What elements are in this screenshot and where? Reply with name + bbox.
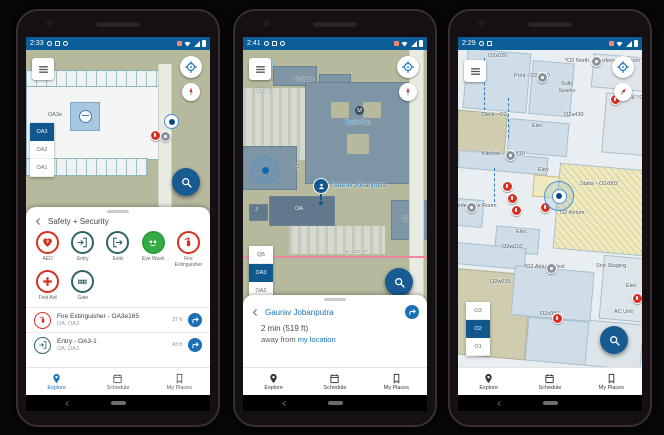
directions-button[interactable] (188, 313, 202, 327)
back-icon[interactable] (496, 400, 503, 407)
front-camera (263, 20, 270, 27)
locate-icon (616, 60, 630, 74)
floor-option-oa3[interactable]: OA3 (249, 264, 273, 282)
floor-option-o3[interactable]: O3 (466, 302, 490, 320)
map-label: Sully Sparks (554, 81, 580, 94)
tab-schedule[interactable]: Schedule (87, 368, 148, 395)
map-building (305, 82, 411, 184)
search-icon (608, 334, 621, 347)
signal-icon (194, 41, 200, 47)
signal-icon (626, 41, 632, 47)
entry-icon (34, 337, 51, 354)
battery-icon (419, 40, 423, 47)
category-fire-extinguisher[interactable]: Fire Extinguisher (171, 231, 206, 267)
notification-icon (487, 41, 492, 46)
bookmark-icon (606, 373, 617, 384)
exits-icon (106, 231, 129, 254)
status-right-icons (394, 40, 424, 47)
result-distance: 37 ft (172, 317, 182, 323)
directions-button[interactable] (405, 305, 419, 319)
no-entry-icon (79, 110, 92, 123)
compass-button[interactable] (399, 83, 417, 101)
tab-label: Explore (479, 385, 498, 391)
calendar-icon (544, 373, 555, 384)
wifi-icon (401, 41, 408, 47)
status-bar: 2:33 (26, 37, 210, 50)
sheet-header: Gaurav Jobanputra (243, 303, 427, 321)
map-parking-lot (289, 226, 385, 254)
home-pill[interactable] (328, 401, 343, 405)
category-label: Entry (66, 256, 100, 267)
fire-extinguisher-marker[interactable] (511, 205, 522, 216)
status-time: 2:33 (30, 37, 44, 50)
result-subtitle: OA, OA3 (57, 321, 166, 327)
map-room-selected[interactable] (70, 102, 100, 131)
poi-marker[interactable] (546, 263, 557, 274)
search-button[interactable] (600, 326, 628, 354)
menu-button[interactable] (464, 60, 486, 82)
category-eye-wash[interactable]: Eye Wash (136, 231, 171, 267)
map-courtyard (363, 102, 381, 118)
map-label: Q (403, 216, 407, 222)
marker-tail (320, 194, 322, 200)
notification-icon (47, 41, 52, 46)
route-line (494, 168, 495, 202)
phone-device-3: 2:29 (448, 9, 652, 427)
status-right-icons (177, 40, 207, 47)
map-label: Elev (538, 167, 549, 173)
home-pill[interactable] (543, 401, 558, 405)
tab-label: My Places (599, 385, 624, 391)
map-label: O (295, 164, 299, 170)
result-distance: 43 ft (172, 342, 182, 348)
directions-icon (408, 308, 417, 317)
category-label: Eye Wash (136, 256, 170, 267)
my-location-link[interactable]: my location (298, 335, 336, 344)
compass-icon (402, 86, 414, 98)
explore-pin-icon (268, 373, 279, 384)
notification-icon (280, 41, 285, 46)
locate-me-button[interactable] (612, 56, 634, 78)
notification-icon (394, 41, 399, 46)
notification-icon (272, 41, 277, 46)
result-text: Fire Extinguisher - OA3e165 OA, OA3 (57, 313, 166, 327)
compass-button[interactable] (614, 83, 632, 101)
gesture-bar (243, 395, 427, 411)
compass-button[interactable] (182, 83, 200, 101)
gate-icon (71, 270, 94, 293)
directions-button[interactable] (188, 338, 202, 352)
locate-me-button[interactable] (397, 56, 419, 78)
marker-base (319, 201, 323, 205)
floor-picker[interactable]: OA3 OA2 OA1 (30, 123, 54, 177)
phone-device-2: 2:41 (233, 9, 437, 427)
bottom-sheet[interactable]: Safety + Security AED Entry (26, 207, 210, 368)
battery-icon (202, 40, 206, 47)
floor-picker[interactable]: QB OA3 OA2 (249, 246, 273, 300)
poi-marker[interactable] (591, 56, 602, 67)
result-subtitle: OA, OA3 (57, 346, 166, 352)
tab-explore[interactable]: Explore (243, 368, 304, 395)
fire-extinguisher-marker[interactable] (502, 181, 513, 192)
menu-button[interactable] (249, 58, 271, 80)
person-marker[interactable] (313, 178, 329, 205)
menu-button[interactable] (32, 58, 54, 80)
gesture-bar (26, 395, 210, 411)
tab-label: My Places (167, 385, 192, 391)
map-label: OA (295, 206, 303, 212)
notification-icon (479, 41, 484, 46)
bottom-nav: Explore Schedule My Places (26, 367, 210, 395)
eye-wash-icon (142, 231, 165, 254)
status-right-icons (609, 40, 639, 47)
map-street-label: W 41ST ST (345, 249, 368, 254)
map-label: AC Unit (614, 309, 633, 315)
tab-label: My Places (384, 385, 409, 391)
eta-text: 2 min (519 ft) (243, 321, 427, 333)
category-gate[interactable]: Gate (65, 270, 100, 306)
tab-my-places[interactable]: My Places (366, 368, 427, 395)
tab-label: Schedule (539, 385, 562, 391)
category-label: Fire Extinguisher (171, 256, 205, 267)
bookmark-icon (391, 373, 402, 384)
gesture-bar (458, 395, 642, 411)
map-label: O2w010 (502, 244, 523, 250)
map-label: O2 Atrium (560, 210, 584, 216)
compass-icon (615, 84, 632, 101)
back-icon[interactable] (281, 400, 288, 407)
search-button[interactable] (385, 268, 413, 296)
notification-icon (609, 41, 614, 46)
status-bar: 2:41 (243, 37, 427, 50)
map-label: Kitchen - O2a510 (482, 151, 525, 157)
phone-1-screen: 2:33 OA3e (26, 37, 210, 411)
fire-extinguisher-marker[interactable] (552, 313, 563, 324)
result-row[interactable]: Entry - OA3-1 OA, OA3 43 ft (26, 332, 210, 357)
poi-marker[interactable] (466, 202, 477, 213)
wifi-icon (616, 41, 623, 47)
floor-option-o1[interactable]: O1 (466, 338, 490, 356)
hamburger-icon (254, 63, 267, 76)
hamburger-icon (37, 63, 50, 76)
earpiece-speaker (96, 22, 140, 27)
map-label: OA3e (48, 112, 62, 118)
person-label: Gaurav Jobanputra (331, 182, 387, 189)
map-label: Elec (516, 229, 527, 235)
entry-icon (71, 231, 94, 254)
sheet-drag-handle[interactable] (324, 298, 346, 301)
poi-marker[interactable] (160, 131, 171, 142)
person-icon (313, 178, 329, 194)
bottom-sheet[interactable]: Gaurav Jobanputra 2 min (519 ft) away fr… (243, 295, 427, 368)
category-label: Exits (101, 256, 135, 267)
back-icon[interactable] (34, 217, 43, 226)
fire-extinguisher-marker[interactable] (632, 293, 642, 304)
away-prefix: away from (261, 335, 296, 344)
location-puck (251, 156, 279, 184)
floor-option-o2[interactable]: O2 (466, 320, 490, 338)
route-line (508, 98, 509, 138)
map-label: Elec (626, 283, 637, 289)
floor-option-oa1[interactable]: OA1 (30, 159, 54, 177)
map-label: O2x020 (488, 53, 507, 59)
bottom-nav: Explore Schedule My Places (458, 367, 642, 395)
map-label: O2w015 (490, 279, 511, 285)
location-puck (544, 181, 574, 211)
bottom-nav: Explore Schedule My Places (243, 367, 427, 395)
floor-option-oa2[interactable]: OA2 (30, 141, 54, 159)
category-grid: AED Entry Exits (26, 228, 210, 307)
notification-icon (264, 41, 269, 46)
map-label: O Plant (255, 88, 273, 94)
fire-extinguisher-icon (177, 231, 200, 254)
location-puck (164, 114, 179, 129)
bookmark-icon (174, 373, 185, 384)
front-camera (478, 20, 485, 27)
status-time: 2:41 (247, 37, 261, 50)
tab-explore[interactable]: Explore (26, 368, 87, 395)
screenshot-canvas: { "colors": { "status_bar": "#0b5d97", "… (0, 0, 664, 435)
locate-icon (184, 60, 198, 74)
map-label: M Plant (295, 77, 314, 83)
map-label: Elec (532, 123, 543, 129)
earpiece-speaker (313, 22, 357, 27)
floor-option-oa3[interactable]: OA3 (30, 123, 54, 141)
calendar-icon (329, 373, 340, 384)
tab-my-places[interactable]: My Places (149, 368, 210, 395)
map-label: Deck - O2 (482, 112, 507, 118)
fire-extinguisher-marker[interactable] (507, 193, 518, 204)
signal-icon (411, 41, 417, 47)
tab-schedule[interactable]: Schedule (304, 368, 365, 395)
map-label: O2a430 (564, 112, 584, 118)
phone-device-1: 2:33 OA3e (16, 9, 220, 427)
fire-extinguisher-icon (34, 312, 51, 329)
home-pill[interactable] (111, 401, 126, 405)
notification-icon (63, 41, 68, 46)
tab-label: Schedule (107, 385, 130, 391)
directions-icon (191, 316, 200, 325)
away-text: away from my location (243, 333, 427, 344)
poi-marker[interactable] (505, 150, 516, 161)
result-title: Entry - OA3-1 (57, 338, 166, 345)
sheet-title: Gaurav Jobanputra (265, 308, 334, 317)
result-row[interactable]: Fire Extinguisher - OA3e165 OA, OA3 37 f… (26, 307, 210, 332)
tab-schedule[interactable]: Schedule (519, 368, 580, 395)
calendar-icon (112, 373, 123, 384)
back-icon[interactable] (251, 308, 260, 317)
map-label: Turtle Pon (345, 120, 370, 126)
indoor-map[interactable]: O2x020 *O2 North A Conference Room Print… (458, 50, 642, 368)
tab-my-places[interactable]: My Places (581, 368, 642, 395)
locate-icon (401, 60, 415, 74)
result-text: Entry - OA3-1 OA, OA3 (57, 338, 166, 352)
map-building (249, 204, 268, 221)
map-label: Srvr Staging (596, 263, 626, 269)
search-icon (393, 276, 406, 289)
map-label: J (255, 207, 258, 213)
directions-icon (191, 341, 200, 350)
phone-2-screen: 2:41 (243, 37, 427, 411)
earpiece-speaker (528, 22, 572, 27)
map-room (601, 92, 642, 157)
category-label: AED (31, 256, 65, 267)
back-icon[interactable] (64, 400, 71, 407)
aed-icon (36, 231, 59, 254)
floor-option-qb[interactable]: QB (249, 246, 273, 264)
category-aed[interactable]: AED (30, 231, 65, 267)
map-label: *O2 Atrium West (524, 264, 565, 270)
sheet-title: Safety + Security (48, 217, 109, 226)
notification-icon (55, 41, 60, 46)
map-label: Conference Room (458, 203, 497, 209)
battery-icon (634, 40, 638, 47)
notification-icon (177, 41, 182, 46)
map-label: Stairs - O2x002 (580, 181, 618, 187)
search-button[interactable] (172, 168, 200, 196)
map-badge: M (355, 106, 364, 115)
tab-label: Schedule (324, 385, 347, 391)
tab-label: Explore (47, 385, 66, 391)
floor-picker[interactable]: O3 O2 O1 (466, 302, 490, 356)
status-bar: 2:29 (458, 37, 642, 50)
category-exits[interactable]: Exits (100, 231, 135, 267)
hamburger-icon (469, 65, 482, 78)
sheet-drag-handle[interactable] (107, 210, 129, 213)
tab-label: Explore (264, 385, 283, 391)
poi-marker[interactable] (537, 72, 548, 83)
wifi-icon (184, 41, 191, 47)
front-camera (46, 20, 53, 27)
category-first-aid[interactable]: First Aid (30, 270, 65, 306)
category-label: Gate (66, 295, 100, 306)
sheet-header: Safety + Security (26, 215, 210, 228)
result-title: Fire Extinguisher - OA3e165 (57, 313, 166, 320)
phone-3-screen: 2:29 (458, 37, 642, 411)
first-aid-icon (36, 270, 59, 293)
category-label: First Aid (31, 295, 65, 306)
map-courtyard (331, 102, 349, 118)
explore-pin-icon (51, 373, 62, 384)
explore-pin-icon (483, 373, 494, 384)
compass-icon (185, 86, 197, 98)
status-time: 2:29 (462, 37, 476, 50)
locate-me-button[interactable] (180, 56, 202, 78)
tab-explore[interactable]: Explore (458, 368, 519, 395)
map-courtyard (347, 134, 369, 154)
category-entry[interactable]: Entry (65, 231, 100, 267)
search-icon (180, 176, 193, 189)
